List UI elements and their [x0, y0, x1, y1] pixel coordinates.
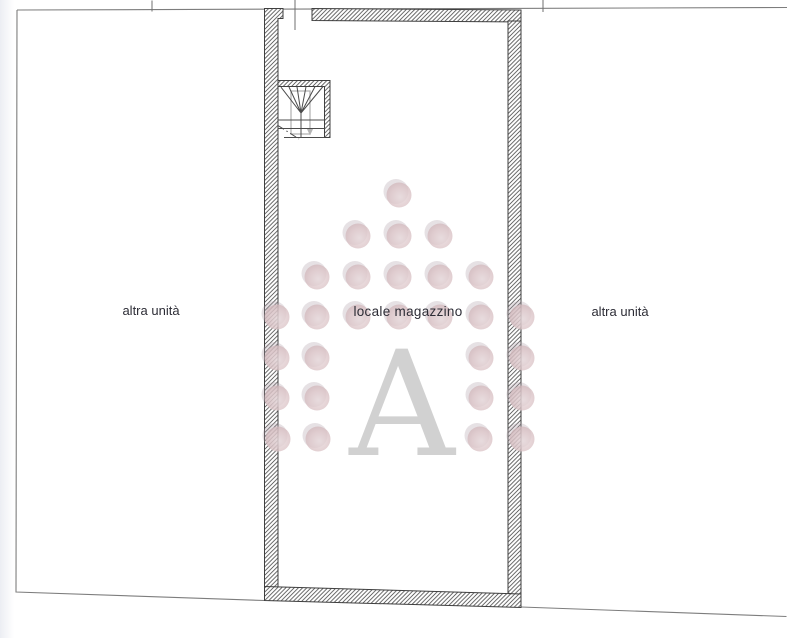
watermark-dot	[305, 305, 330, 330]
watermark-dot	[510, 427, 535, 452]
watermark-dot	[510, 305, 535, 330]
stair-straight-treads	[278, 113, 325, 138]
watermark-dot	[387, 183, 412, 208]
watermark-dot	[469, 346, 494, 371]
watermark-dot	[265, 305, 290, 330]
watermark-dot	[305, 265, 330, 290]
wall-top	[312, 9, 521, 23]
watermark-dot	[469, 386, 494, 411]
watermark-dot	[387, 224, 412, 249]
stair-cut-line	[278, 126, 299, 140]
watermark-dot	[265, 386, 290, 411]
staircase-symbol	[278, 81, 330, 140]
watermark-dot	[387, 265, 412, 290]
label-storage-room: locale magazzino	[353, 304, 462, 319]
wall-left	[265, 9, 284, 589]
floorplan-page: { "labels": { "left_unit": "altra unità"…	[0, 0, 800, 638]
wall-bottom	[265, 587, 522, 608]
label-right-unit: altra unità	[591, 304, 649, 319]
watermark-dot	[510, 386, 535, 411]
watermark-dot	[306, 427, 331, 452]
watermark-dot	[265, 346, 290, 371]
watermark-dot	[428, 265, 453, 290]
label-left-unit: altra unità	[122, 303, 180, 318]
watermark-dot	[469, 265, 494, 290]
floorplan-canvas: A altra unità locale magazzino altra uni…	[0, 0, 800, 638]
watermark-dot	[346, 224, 371, 249]
watermark-dot	[266, 427, 291, 452]
watermark-dot	[305, 346, 330, 371]
watermark-dot	[346, 265, 371, 290]
watermark-dot	[428, 224, 453, 249]
watermark-letter: A	[348, 320, 456, 490]
watermark-dot	[510, 346, 535, 371]
boundary-bottom-right-line	[521, 607, 787, 617]
watermark-dot	[468, 427, 493, 452]
watermark-dot	[305, 386, 330, 411]
watermark-dot	[469, 305, 494, 330]
